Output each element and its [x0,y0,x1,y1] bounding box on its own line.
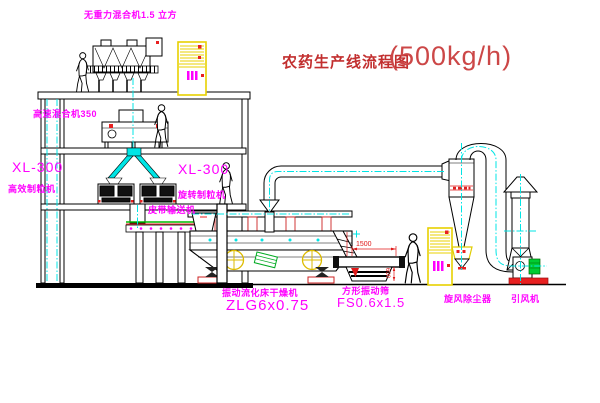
label-granulator-right-name: 旋转制粒机 [178,191,226,200]
induced-draft-fan [509,257,548,284]
dimension-screen-height: 600 [384,268,390,278]
ground-line [36,283,566,288]
feed-point-mark [353,231,360,238]
dimension-screen-length: 1500 [356,241,372,248]
control-cabinet-top [178,42,206,95]
label-belt-conveyor: 皮带输送机 [148,206,196,215]
label-high-speed-mixer: 高速混合机350 [33,110,97,119]
flow-diagram: 无重力混合机1.5 立方 高速混合机350 XL-300 高效制粒机 XL-30… [0,0,600,403]
person-figure-4 [405,234,420,283]
label-screen-model: FS0.6x1.5 [337,296,405,309]
label-granulator-left-name: 高效制粒机 [8,185,56,194]
label-induced-draft-fan: 引风机 [511,295,540,304]
building-column-front [217,204,227,283]
label-granulator-right-model: XL-300 [178,162,229,176]
page-title-capacity: (500kg/h) [389,43,512,70]
label-zero-gravity-mixer: 无重力混合机1.5 立方 [84,11,177,20]
granulator-left [98,184,134,204]
label-dryer-model: ZLG6x0.75 [226,298,309,313]
label-cyclone: 旋风除尘器 [444,295,492,304]
granulator-right [140,184,176,204]
dryer-feed-hopper [192,213,216,231]
label-granulator-left-model: XL-300 [12,160,63,174]
zero-gravity-mixer [86,38,162,92]
control-cabinet-right [428,228,452,285]
